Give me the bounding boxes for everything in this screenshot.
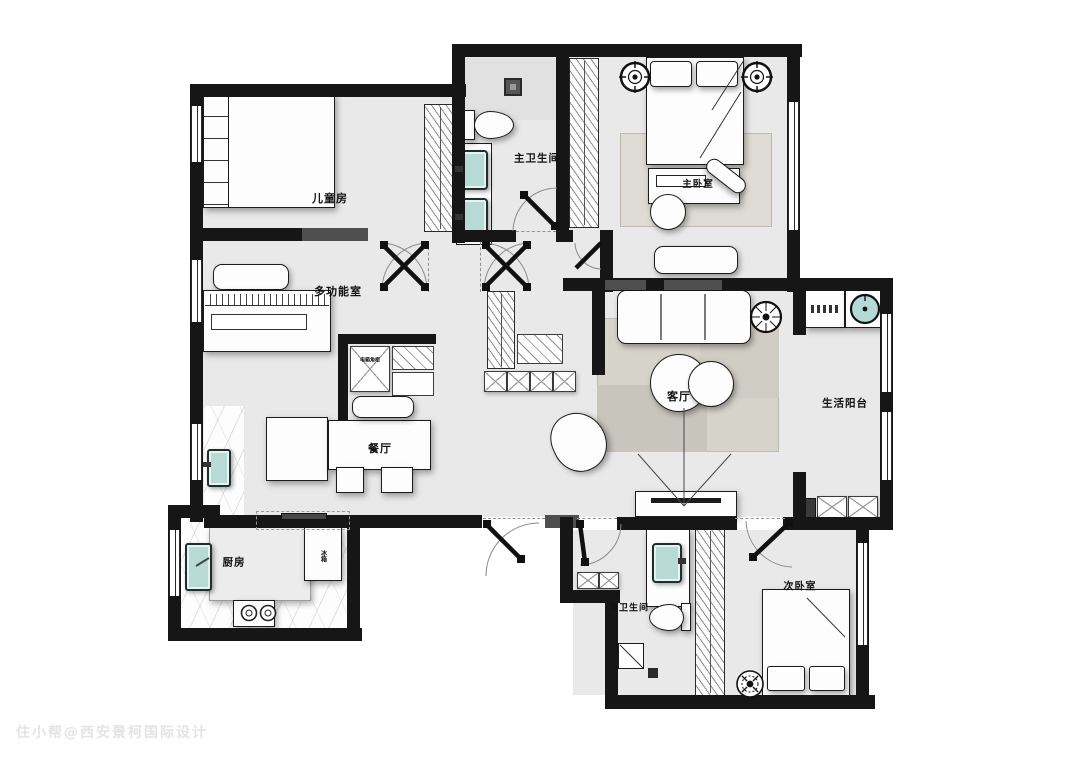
window [169,530,180,596]
label-master-bedroom: 主卧室 [682,176,714,190]
window [191,260,202,322]
master-bench [654,246,738,274]
kitchen-sliding-door [281,513,327,520]
window [788,102,799,230]
master-pillow-2 [696,61,738,87]
wall [556,56,569,232]
second-bedroom-wardrobe [695,528,725,696]
piano-keys [205,294,329,306]
balcony-cab-1 [817,496,847,518]
sofa [617,290,751,344]
label-second-bedroom: 次卧室 [784,578,817,593]
foyer-cab-3 [530,371,553,392]
wall [452,44,465,243]
mop-sink [207,449,231,487]
window [881,412,892,480]
master-desk-chair [650,194,686,230]
master-walkin-wardrobe [569,58,599,228]
watermark: 住小帮@西安景柯国际设计 [16,722,208,742]
balcony-cab-2 [848,496,878,518]
second-pillow-2 [809,666,845,691]
piano-inner [211,314,307,330]
kitchen-sink [185,543,212,591]
foyer-cab-4 [553,371,576,392]
children-bed-headboard [203,94,229,208]
wall [563,278,605,291]
label-corner-cabinet: 电箱角柜 [360,357,380,364]
foyer-closet [487,291,515,369]
second-bath-fixture [648,668,658,678]
foyer-shelf [517,334,563,364]
door-jamb-dash [480,242,481,292]
floor-plan: 儿童房 主卫生间 主卧室 多功能室 客厅 生活阳台 餐厅 厨房 次卫生间 次卧室… [0,0,1080,764]
coffee-table-small [688,361,734,407]
dining-bench [352,396,414,418]
threshold [577,518,617,519]
label-kitchen: 厨房 [223,555,246,570]
second-pillow-1 [767,666,805,691]
label-life-balcony: 生活阳台 [822,396,868,411]
label-second-bath: 次卫生间 [609,601,649,614]
corner-cabinet-wall-h [338,334,436,344]
label-dining-room: 餐厅 [368,440,392,456]
label-multi-function: 多功能室 [314,283,362,299]
wall [605,695,875,709]
window [881,314,892,392]
threshold [735,518,785,519]
tv-console [635,491,737,517]
window [857,543,868,645]
threshold [516,231,556,232]
wall [190,84,466,97]
dining-chair-2 [381,467,413,493]
window [191,424,202,480]
multi-bench [213,264,289,290]
door-jamb-dash [428,242,429,292]
wall [793,517,893,530]
label-fridge: 冰箱 [319,550,328,562]
balcony-cabinet-lines [811,305,839,313]
label-children-room: 儿童房 [312,190,348,206]
foyer-cab-1 [484,371,507,392]
shower-drain-dot [510,84,516,90]
wall-lintel [302,228,368,241]
wall [793,278,806,335]
dining-island [266,417,328,481]
wall [168,628,362,641]
second-bath-sink [652,543,682,583]
second-shoe-cab-2 [599,572,619,589]
stove [233,600,275,627]
wall [605,597,618,709]
wall [452,230,516,242]
corner-cabinet-box [350,346,390,392]
wall [783,517,800,530]
second-shoe-cab-1 [577,572,599,589]
foyer-cab-2 [507,371,530,392]
tv-bar [651,498,721,503]
dining-chair-1 [336,467,364,493]
second-shower-tray [618,643,644,669]
wall [617,517,737,530]
wall [347,515,360,641]
wall [452,44,802,57]
corner-shelf-2 [392,372,434,396]
label-master-bath: 主卫生间 [514,151,560,166]
master-pillow-1 [650,61,692,87]
corner-shelf-1 [392,346,434,370]
wall [354,515,482,528]
corner-cabinet-wall-v [338,334,348,434]
second-toilet-bowl [649,604,684,631]
wall-lintel [664,280,722,290]
wall [592,291,605,375]
threshold [483,518,545,519]
window [191,106,202,162]
wall-lintel [604,280,646,290]
label-living-room: 客厅 [667,388,691,404]
washing-machine [845,290,885,328]
